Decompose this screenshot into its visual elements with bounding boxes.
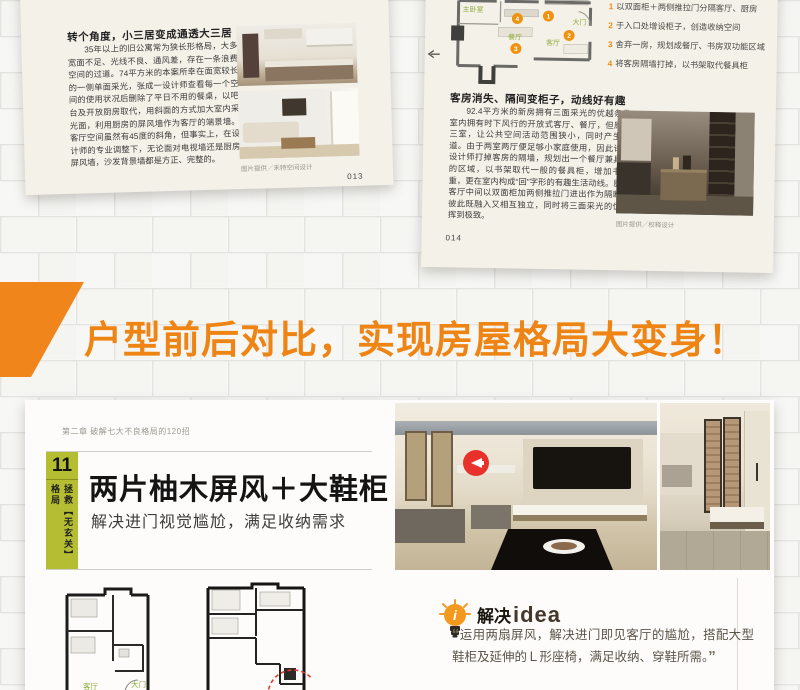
kitchen-photo (236, 23, 358, 86)
photo-detail (723, 417, 741, 515)
callout-number: 1 (609, 1, 614, 11)
callout-number: 2 (608, 20, 613, 30)
divider (46, 569, 372, 570)
banner-headline: 户型前后对比，实现房屋格局大变身！ (84, 318, 747, 364)
case-number-strip: 11 拯救【无玄关】格局 (46, 452, 78, 569)
photo-detail (265, 65, 353, 81)
photo-credit: 图片提供／禾特空间设计 (241, 161, 313, 173)
arrow-left-icon (427, 49, 441, 59)
plan-label-door: 大门 (131, 679, 146, 689)
book-page-case-11: 第二章 破解七大不良格局的120招 11 拯救【无玄关】格局 两片柚木屏风＋大鞋… (25, 400, 774, 690)
callout-item: 4将客房隔墙打掉，以书架取代餐具柜 (608, 57, 749, 71)
photo-detail (533, 447, 631, 489)
case-title: 两片柚木屏风＋大鞋柜 (89, 466, 389, 508)
callout-number: 3 (608, 39, 613, 49)
callout-item: 3舍弃一房，规划成餐厅、书房双功能区域 (608, 38, 765, 53)
red-pointer-badge-icon (462, 449, 490, 477)
photo-detail (306, 28, 352, 47)
photo-credit: 图片提供／权释设计 (616, 218, 675, 229)
photo-detail (282, 98, 306, 116)
lounge-photo (616, 110, 755, 215)
page-number: 013 (347, 172, 364, 181)
open-quote: “ (452, 626, 460, 643)
photo-detail (471, 505, 511, 529)
photo-detail (405, 431, 427, 501)
photo-detail (281, 137, 315, 149)
page-body-text: 92.4平方米的新房拥有三面采光的优越条件，室内拥有时下风行的开放式客厅、餐厅，… (448, 105, 640, 224)
book-page-014: 主卧室 餐厅 客厅 大门 4 1 2 3 1以双面柜＋两侧推拉门分隔客厅、厨房 … (421, 0, 779, 273)
living-room-photo (238, 88, 360, 159)
divider (46, 451, 372, 452)
callout-item: 2于入口处增设柜子，创造收纳空间 (608, 19, 740, 33)
photo-detail (710, 507, 764, 522)
plan-label-living: 客厅 (83, 681, 98, 690)
plan-label-living: 客厅 (546, 38, 560, 47)
photo-detail (708, 112, 736, 200)
photo-detail (621, 118, 652, 161)
promo-image: 转个角度，小三居变成通透大三居 35年以上的旧公寓常为狭长形格局，大多宽面不足、… (0, 0, 800, 690)
plan-label-door: 大门 (572, 18, 586, 27)
svg-text:2: 2 (567, 33, 571, 40)
photo-detail (242, 34, 259, 78)
plan-label-dining: 餐厅 (508, 32, 522, 41)
photo-detail (683, 155, 691, 169)
photo-detail (756, 463, 758, 481)
hero-photo-entry (660, 403, 770, 570)
photo-detail (660, 531, 770, 570)
photo-detail (660, 169, 707, 201)
case-subtitle: 解决进门视觉尴尬，满足收纳需求 (91, 508, 346, 532)
photo-detail (330, 91, 359, 146)
callout-text: 舍弃一房，规划成餐厅、书房双功能区域 (616, 39, 766, 52)
callout-number: 4 (608, 58, 613, 68)
callout-text: 于入口处增设柜子，创造收纳空间 (616, 20, 741, 32)
callout-item: 1以双面柜＋两侧推拉门分隔客厅、厨房 (609, 0, 758, 15)
case-tag-vertical: 拯救【无玄关】格局 (49, 484, 75, 568)
plan-label-master: 主卧室 (462, 5, 483, 14)
photo-detail (662, 465, 692, 487)
hero-photo-living (395, 403, 657, 570)
callout-text: 将客房隔墙打掉，以书架取代餐具柜 (615, 58, 748, 70)
idea-quote: “运用两扇屏风，解决进门即见客厅的尴尬，搭配大型鞋柜及延伸的Ｌ形座椅，满足收纳、… (452, 624, 754, 668)
photo-detail (395, 509, 465, 543)
svg-text:3: 3 (514, 46, 518, 53)
svg-text:4: 4 (516, 16, 520, 23)
photo-detail (616, 162, 651, 195)
photo-detail (513, 505, 647, 515)
photo-detail (704, 419, 722, 513)
photo-detail (710, 522, 764, 529)
floorplan-before-small: 客厅 大门 (55, 583, 155, 690)
floorplan-after: 主卧室 餐厅 客厅 大门 4 1 2 3 (437, 0, 604, 95)
photo-detail (673, 157, 679, 169)
photo-detail (513, 515, 647, 521)
photo-detail (431, 431, 453, 507)
callout-text: 以双面柜＋两侧推拉门分隔客厅、厨房 (616, 1, 757, 13)
chapter-header: 第二章 破解七大不良格局的120招 (62, 426, 190, 437)
floorplan-after-small (200, 580, 312, 690)
book-page-013: 转个角度，小三居变成通透大三居 35年以上的旧公寓常为狭长形格局，大多宽面不足、… (19, 0, 394, 195)
page-body-text: 35年以上的旧公寓常为狭长形格局，大多宽面不足、光线不良、通风差，存在一条浪费空… (67, 39, 240, 170)
photo-detail (551, 542, 577, 550)
close-quote: ” (708, 648, 716, 665)
photo-detail (264, 28, 302, 39)
page-number: 014 (445, 233, 462, 242)
svg-text:1: 1 (547, 14, 551, 21)
case-number: 11 (46, 452, 78, 480)
